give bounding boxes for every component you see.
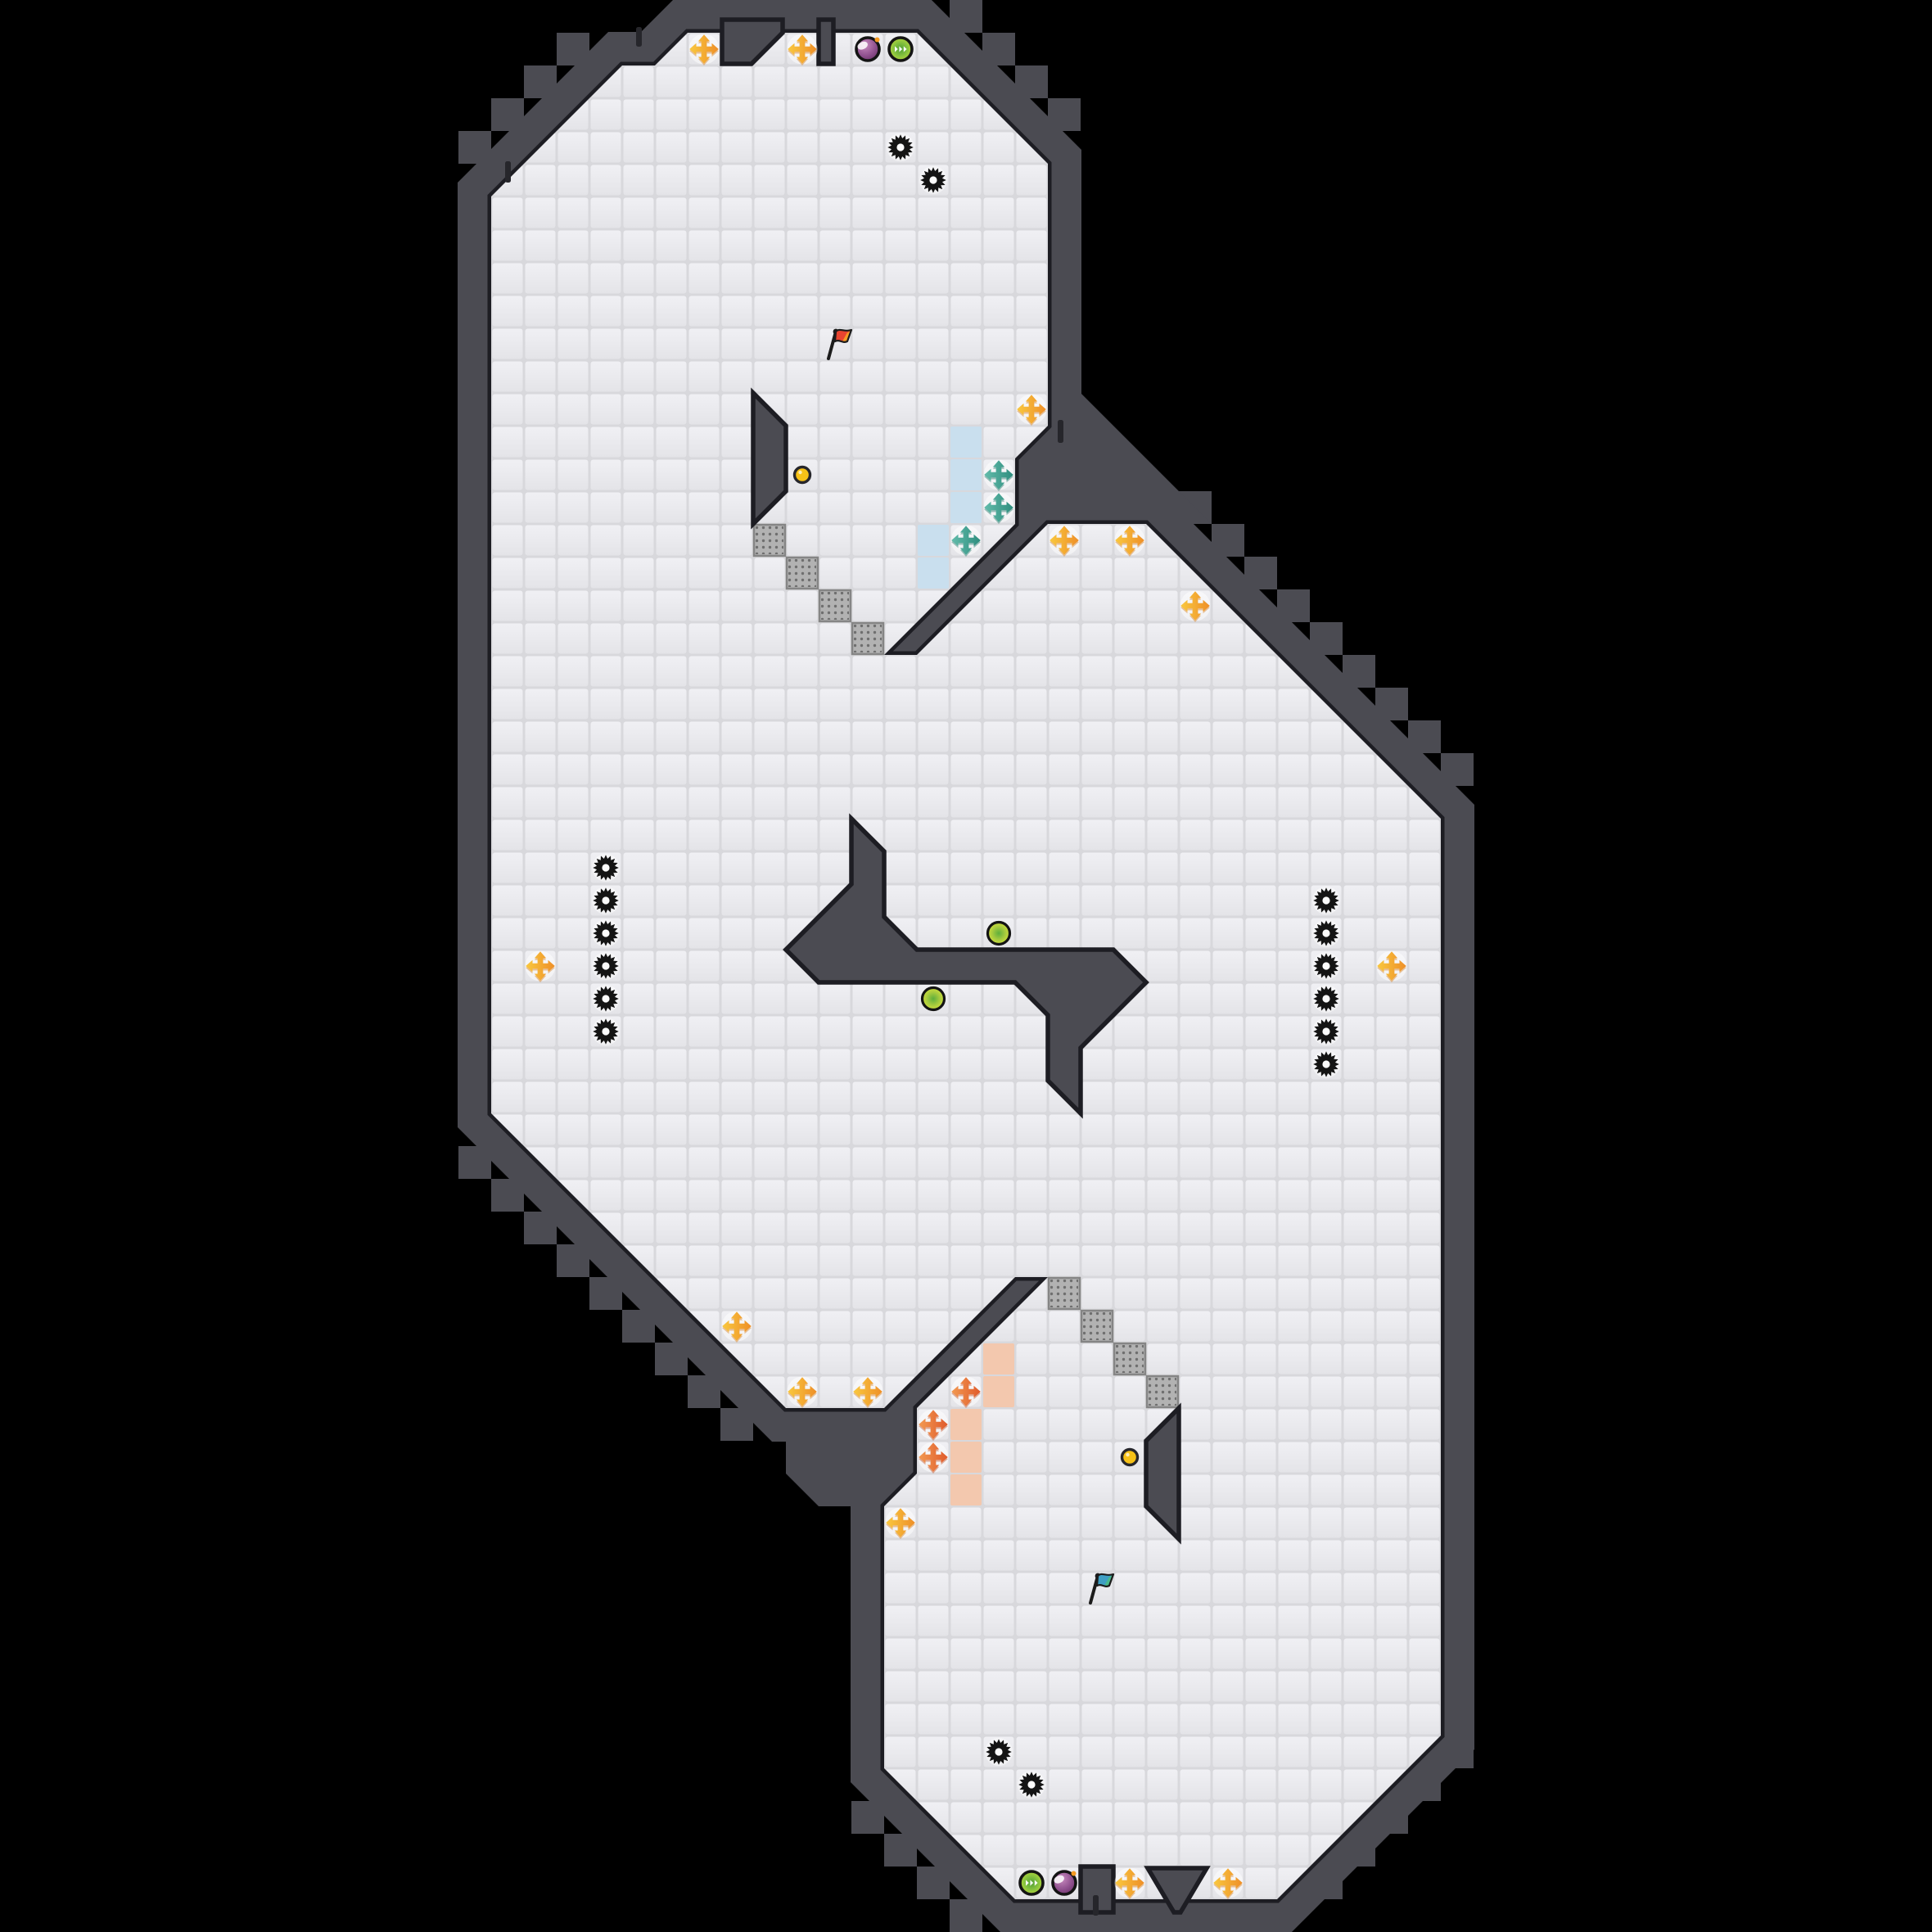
- blue-team-tile[interactable]: [918, 525, 949, 556]
- green-ball-pickup[interactable]: [923, 988, 945, 1010]
- gear-spike-hazard: [1312, 887, 1340, 914]
- blue-team-tile[interactable]: [950, 427, 982, 458]
- tile-map-canvas[interactable]: [0, 0, 1932, 1932]
- green-powerup-orb[interactable]: [889, 38, 912, 61]
- green-powerup-orb[interactable]: [1020, 1871, 1043, 1894]
- gear-spike-hazard: [919, 166, 947, 194]
- wall-notch-mark: [636, 27, 642, 47]
- green-ball-pickup[interactable]: [988, 923, 1010, 945]
- purple-powerup-orb[interactable]: [856, 38, 880, 61]
- tooth-top-stub: [819, 20, 833, 64]
- gear-spike-hazard: [1312, 919, 1340, 947]
- wall-notch-mark: [1058, 420, 1063, 443]
- button-dot[interactable]: [795, 467, 810, 483]
- gear-spike-hazard: [1312, 1050, 1340, 1078]
- gear-spike-hazard: [1018, 1771, 1045, 1799]
- gear-spike-hazard: [1312, 952, 1340, 980]
- gear-spike-hazard: [592, 919, 620, 947]
- pink-team-tile[interactable]: [950, 1442, 982, 1473]
- gear-spike-hazard: [592, 985, 620, 1013]
- blue-team-tile[interactable]: [950, 459, 982, 490]
- gear-spike-hazard: [592, 1018, 620, 1045]
- gear-spike-hazard: [592, 952, 620, 980]
- gear-spike-hazard: [592, 887, 620, 914]
- gear-spike-hazard: [1312, 985, 1340, 1013]
- pink-team-tile[interactable]: [950, 1474, 982, 1505]
- wall-notch-mark: [505, 161, 511, 183]
- pink-team-tile[interactable]: [950, 1409, 982, 1440]
- orb-fuse-dot: [875, 38, 880, 43]
- button-dot[interactable]: [1122, 1450, 1138, 1465]
- pink-team-tile[interactable]: [983, 1343, 1014, 1375]
- blue-team-tile[interactable]: [918, 557, 949, 589]
- wall-notch-mark: [1093, 1895, 1099, 1916]
- pink-team-tile[interactable]: [983, 1376, 1014, 1407]
- blue-team-tile[interactable]: [950, 492, 982, 523]
- game-map-viewport: [0, 0, 1932, 1932]
- gear-spike-hazard: [985, 1738, 1013, 1766]
- orb-fuse-dot: [1072, 1871, 1077, 1876]
- gear-spike-hazard: [592, 854, 620, 882]
- gear-spike-hazard: [887, 133, 914, 161]
- purple-powerup-orb[interactable]: [1053, 1871, 1077, 1895]
- gear-spike-hazard: [1312, 1018, 1340, 1045]
